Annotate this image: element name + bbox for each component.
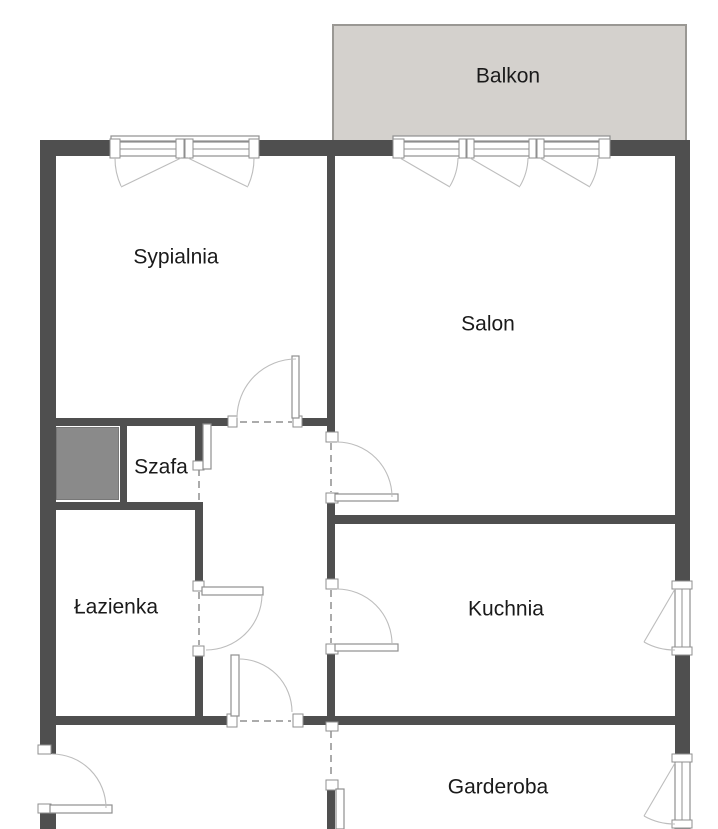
kuchnia-window: [644, 581, 692, 655]
hall-garderoba-door: [227, 655, 303, 727]
floor-plan: Balkon Sypialnia Salon Szafa Łazienka Ku…: [0, 0, 718, 829]
room-label-kuchnia: Kuchnia: [468, 599, 544, 620]
kuchnia-door: [326, 579, 398, 654]
room-label-lazienka: Łazienka: [74, 597, 158, 618]
entrance-door: [38, 745, 112, 813]
lazienka-door: [193, 581, 263, 656]
balcony-window-door: [393, 136, 610, 187]
salon-door: [326, 432, 398, 503]
room-label-sypialnia: Sypialnia: [133, 247, 218, 268]
room-label-szafa: Szafa: [134, 457, 188, 478]
room-label-balkon: Balkon: [476, 66, 540, 87]
room-label-garderoba: Garderoba: [448, 777, 548, 798]
szafa-door: [193, 424, 211, 503]
sypialnia-door: [228, 356, 302, 427]
doors-windows-overlay: [0, 0, 718, 829]
sypialnia-window: [110, 136, 259, 187]
garderoba-window: [644, 754, 692, 829]
room-label-salon: Salon: [461, 314, 515, 335]
garderoba-side-door: [326, 722, 344, 829]
